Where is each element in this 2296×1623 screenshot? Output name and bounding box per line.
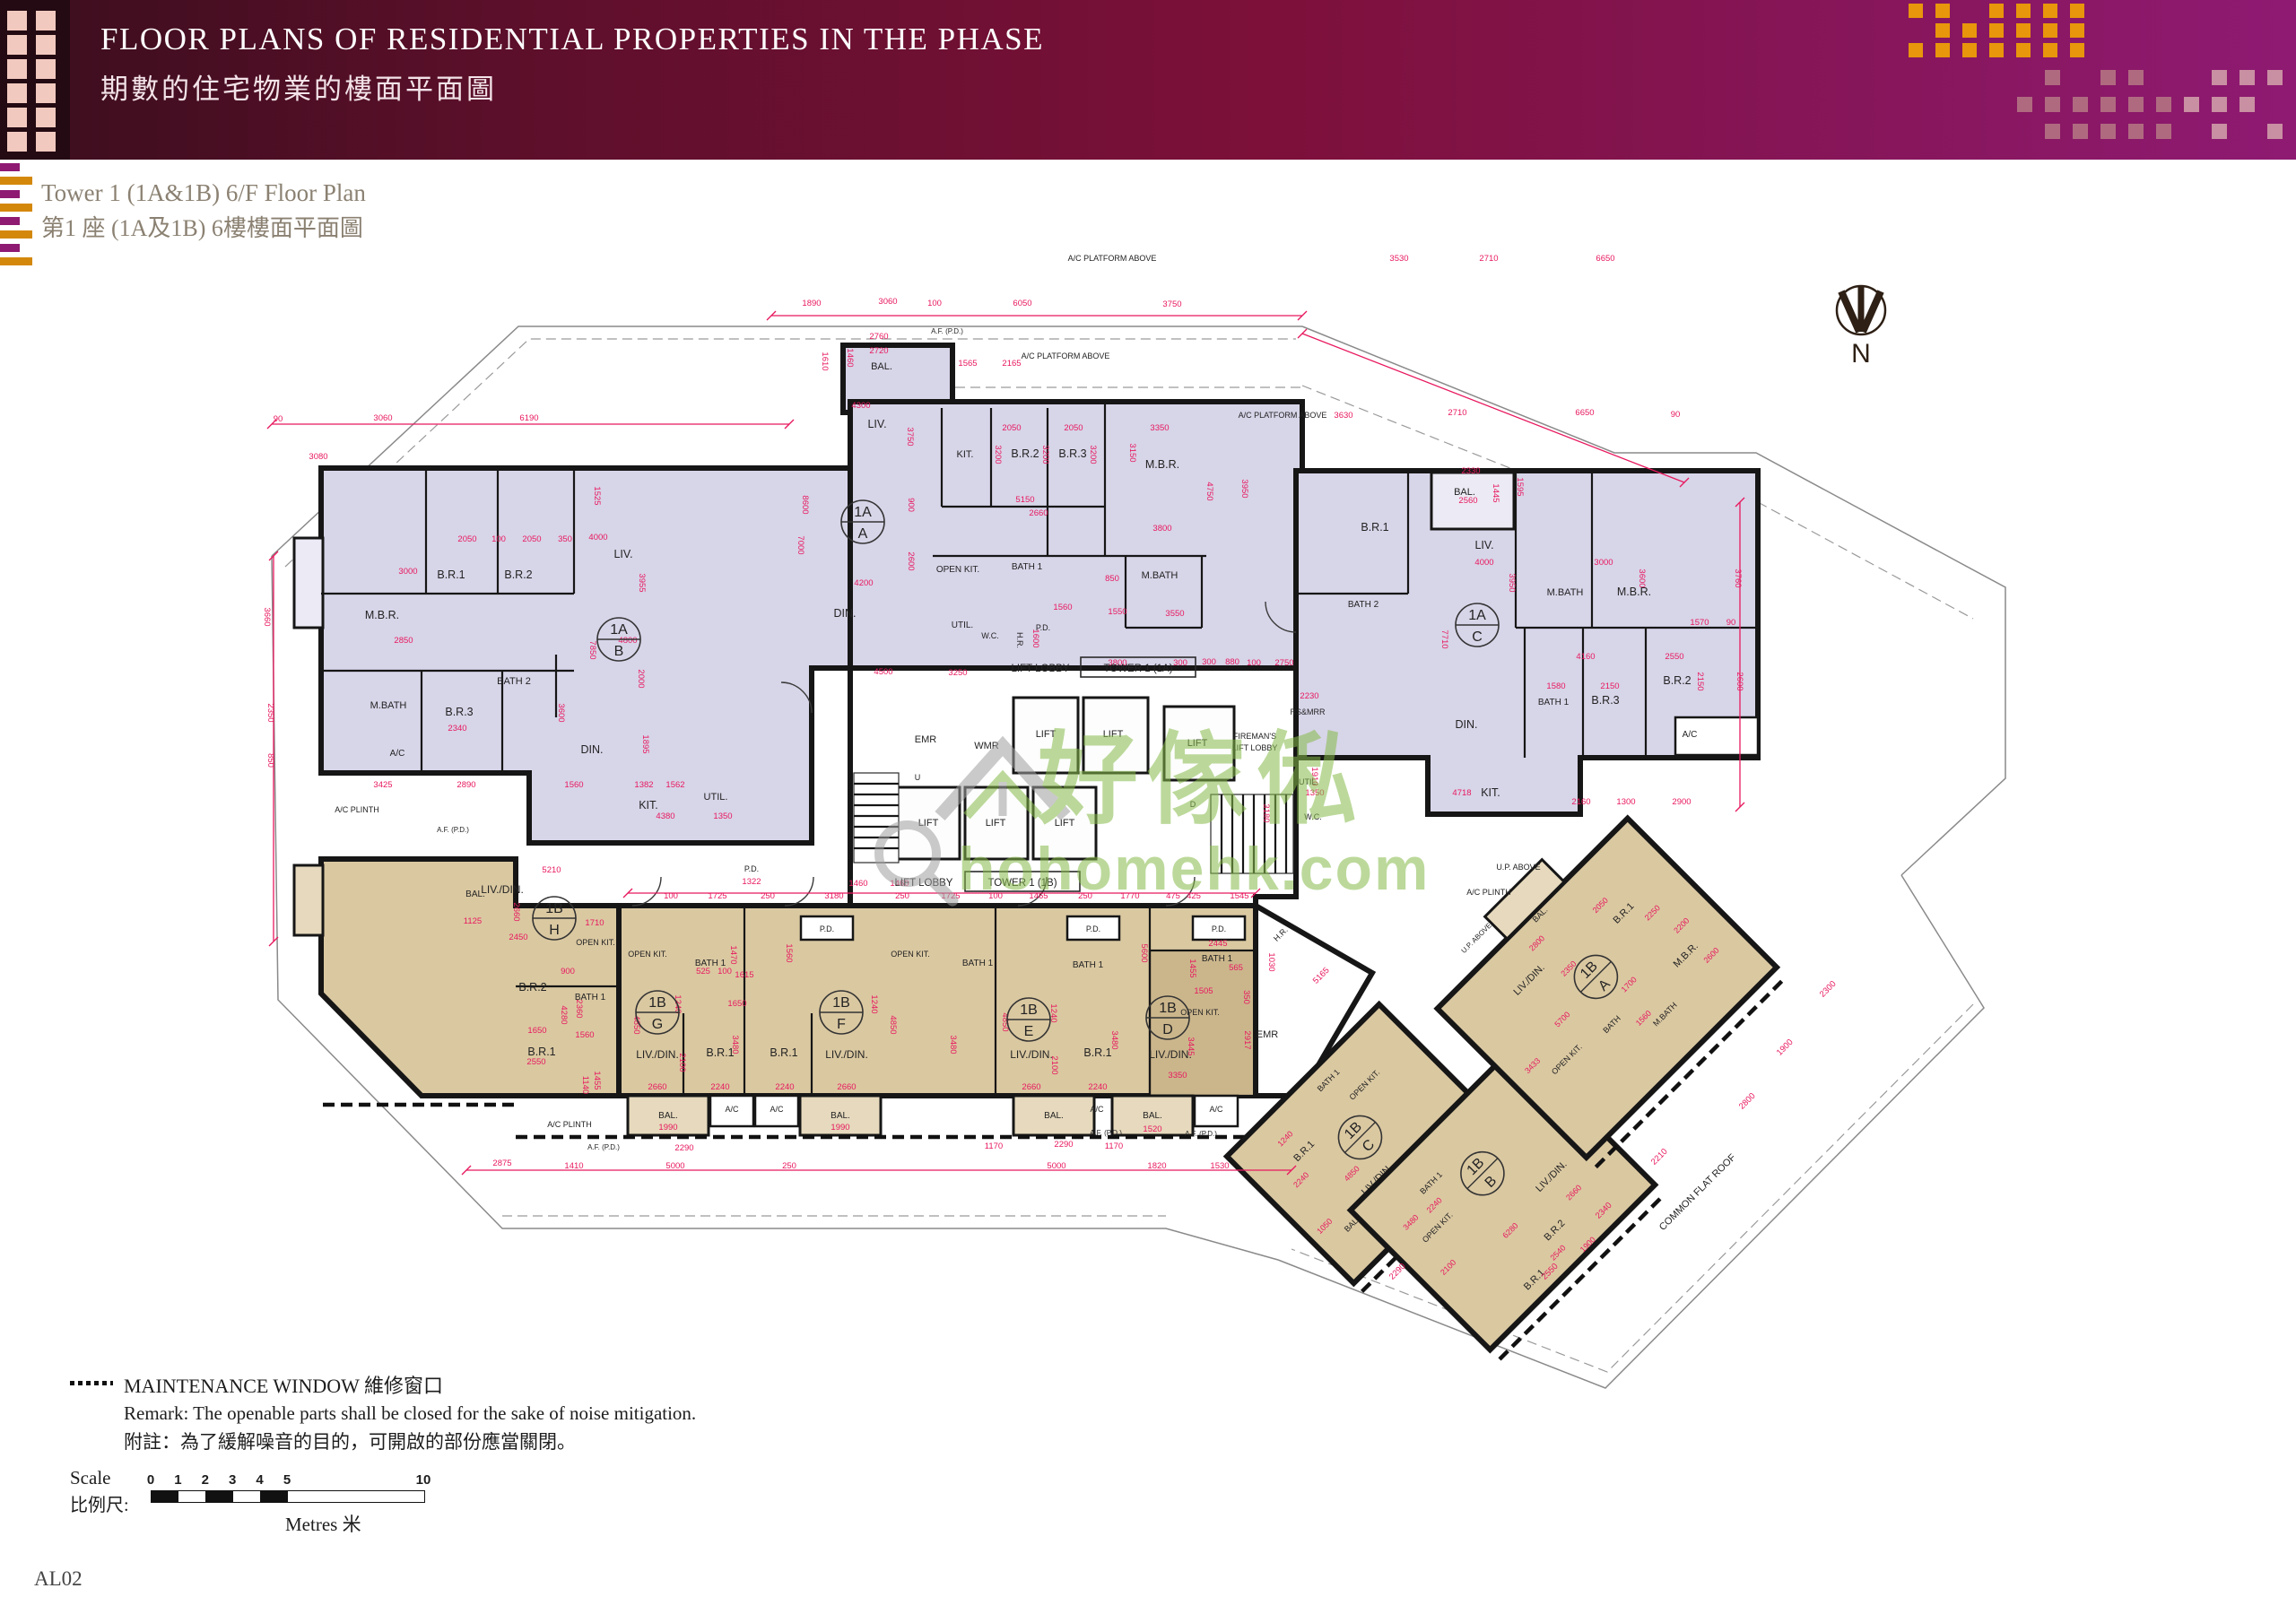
room-label: A/C: [770, 1105, 784, 1114]
dimension-label: 900: [561, 967, 575, 976]
dimension-label: 1455: [592, 1071, 602, 1089]
unit-1A-B-balcony: [294, 538, 323, 628]
dimension-label: 1382: [634, 780, 653, 790]
dimension-label: 3760: [1733, 568, 1743, 587]
room-label: LIV./DIN.: [1149, 1048, 1192, 1061]
unit-badge-bottom: C: [1472, 629, 1483, 645]
dimension-label: 300: [1173, 658, 1187, 668]
scale-tick: 4: [256, 1472, 263, 1488]
room-label: LIV./DIN.: [825, 1048, 868, 1061]
dimension-label: 2165: [1002, 359, 1021, 369]
dimension-label: 1650: [527, 1026, 546, 1036]
room-label: P.D.: [1036, 623, 1050, 632]
dimension-label: 2290: [1054, 1140, 1073, 1150]
room-label: DIN.: [834, 607, 857, 620]
room-label: BAL.: [1143, 1111, 1162, 1121]
legend: MAINTENANCE WINDOW 維修窗口 Remark: The open…: [70, 1370, 967, 1401]
room-label: OPEN KIT.: [936, 565, 979, 575]
dimension-label: 1990: [831, 1123, 849, 1133]
room-label: B.R.3: [1591, 694, 1619, 707]
room-label: M.B.R.: [1145, 458, 1179, 471]
dimension-label: 1650: [727, 999, 746, 1009]
dimension-label: 565: [1229, 963, 1243, 973]
dimension-label: 2660: [511, 902, 521, 921]
room-label: OPEN KIT.: [628, 950, 667, 959]
unit-badge-bottom: F: [837, 1017, 846, 1032]
room-label: OPEN KIT.: [891, 950, 930, 959]
room-label: DIN.: [1456, 718, 1478, 731]
room-label: BATH 2: [1348, 600, 1379, 610]
room-label: EMR: [1257, 1029, 1279, 1040]
dimension-label: 2050: [522, 534, 541, 544]
dimension-label: 1725: [708, 891, 726, 901]
dimension-label: 3660: [262, 607, 272, 626]
dimension-label: 1570: [1690, 618, 1709, 628]
dimension-label: 3630: [1334, 411, 1352, 421]
dimension-label: 2050: [1064, 423, 1083, 433]
dimension-tick: [1298, 329, 1307, 338]
dimension-label: 2450: [509, 933, 527, 942]
dimension-label: 2890: [457, 780, 475, 790]
dimension-label: 6050: [1013, 299, 1031, 308]
dimension-label: 3750: [905, 427, 915, 446]
dimension-label: 2350: [265, 703, 275, 722]
room-label: A.F. (P.D.): [587, 1143, 620, 1151]
dimension-label: 2660: [1029, 508, 1048, 518]
dimension-label: 3180: [824, 891, 843, 901]
dimension-label: 1520: [1143, 1124, 1161, 1134]
dimension-label: 2445: [1208, 939, 1227, 949]
dimension-label: 90: [274, 414, 283, 424]
room-label: KIT.: [957, 449, 974, 460]
dimension-label: 6650: [1575, 408, 1594, 418]
dimension-label: 2800: [1737, 1091, 1758, 1112]
room-label: U.P. ABOVE: [1496, 863, 1540, 872]
dimension-label: 350: [1241, 990, 1251, 1004]
dimension-label: 4280: [559, 1005, 569, 1024]
dimension-label: 1900: [1775, 1037, 1796, 1058]
dimension-label: 3600: [556, 703, 566, 722]
room-label: M.BATH: [370, 700, 407, 711]
north-label: N: [1851, 339, 1871, 369]
room-label: B.R.1: [770, 1046, 797, 1059]
dimension-label: 1560: [575, 1030, 594, 1040]
dimension-label: 100: [491, 534, 506, 544]
dimension-label: 900: [906, 498, 916, 512]
unit-badge-top: 1B: [648, 995, 666, 1011]
dimension-label: 2760: [869, 332, 888, 342]
dimension-label: 1562: [665, 780, 684, 790]
dimension-label: 1530: [1210, 1161, 1229, 1171]
dimension-label: 7000: [796, 535, 805, 554]
dimension-label: 3950: [1507, 573, 1517, 592]
room-label: P.D.: [820, 924, 834, 933]
dimension-label: 1460: [848, 879, 867, 889]
dimension-label: 1445: [1491, 483, 1500, 502]
dimension-label: 300: [1202, 657, 1216, 667]
dimension-label: 1030: [1266, 952, 1276, 971]
dimension-label: 3350: [1150, 423, 1169, 433]
room-label: LIV./DIN.: [481, 883, 524, 896]
dimension-label: 4200: [854, 578, 873, 588]
room-label: BATH 1: [1073, 960, 1104, 970]
dimension-label: 1820: [1147, 1161, 1166, 1171]
dimension-label: 1990: [658, 1123, 677, 1133]
dimension-label: 3350: [1168, 1071, 1187, 1081]
dimension-label: 4850: [888, 1015, 898, 1034]
dimension-label: 5210: [542, 865, 561, 875]
dimension-label: 1170: [1105, 1141, 1123, 1151]
dimension-label: 5600: [1139, 943, 1149, 962]
room-label: DIN.: [581, 743, 604, 756]
room-label: LIFT: [986, 818, 1006, 829]
dimension-label: 5000: [665, 1161, 684, 1171]
unit-badge-top: 1B: [1020, 1002, 1038, 1018]
dimension-label: 3150: [1127, 443, 1137, 462]
room-label: A/C PLATFORM ABOVE: [1022, 352, 1110, 360]
room-label: A.F. (P.D.): [1185, 1130, 1217, 1138]
scale-bar: [151, 1490, 425, 1503]
dimension-label: 3480: [948, 1035, 958, 1054]
dimension-label: 1610: [820, 352, 830, 370]
room-label: UTIL.: [952, 621, 973, 630]
dimension-label: 2160: [1571, 797, 1590, 807]
room-label: OPEN KIT.: [576, 938, 615, 947]
page-code: AL02: [34, 1567, 83, 1591]
dimension-label: 1550: [1108, 607, 1126, 617]
dimension-label: 7710: [1439, 629, 1449, 648]
unit-badge-top: 1B: [832, 995, 850, 1011]
dimension-label: 1560: [1053, 603, 1072, 612]
dimension-label: 2875: [492, 1159, 511, 1168]
scale-metres-label: Metres 米: [285, 1510, 361, 1537]
dimension-label: 1170: [985, 1141, 1003, 1151]
dimension-label: 1350: [713, 811, 732, 821]
room-label: LIV.: [867, 418, 886, 430]
room-label: A/C: [1090, 1105, 1104, 1114]
room-label: LIV.: [1474, 539, 1493, 551]
dimension-label: 2150: [1695, 672, 1705, 690]
dimension-label: 850: [1105, 574, 1119, 584]
room-label: LIV./DIN.: [1010, 1048, 1053, 1061]
room-label: A/C PLINTH: [547, 1120, 592, 1129]
unit-1A-B-outline: [321, 468, 850, 843]
scale-tick: 0: [147, 1472, 154, 1488]
room-label: B.R.1: [706, 1046, 734, 1059]
dimension-label: 1710: [585, 918, 604, 928]
dimension-label: 100: [927, 299, 942, 308]
north-arrow-icon: N: [1837, 285, 1885, 369]
room-label: U.P. ABOVE: [1460, 922, 1493, 955]
dimension-label: 3000: [398, 567, 417, 577]
dimension-label: 3950: [1239, 479, 1249, 498]
dimension-label: 3425: [373, 780, 392, 790]
room-label: BAL.: [1454, 487, 1475, 498]
scale-label-en: Scale: [70, 1467, 110, 1489]
dimension-label: 1322: [742, 877, 761, 887]
dimension-label: 90: [1726, 618, 1736, 628]
dimension-label: 2660: [1022, 1082, 1040, 1092]
dimension-label: 2550: [526, 1057, 545, 1067]
room-label: KIT.: [1481, 786, 1500, 799]
dimension-label: 3530: [1389, 254, 1408, 264]
unit-1A-A-outline: [850, 402, 1302, 668]
dimension-label: 2050: [457, 534, 476, 544]
dimension-label: 2660: [648, 1082, 666, 1092]
dimension-label: 250: [895, 891, 909, 901]
room-label: BAL.: [871, 361, 892, 372]
room-label: A/C: [1209, 1105, 1223, 1114]
unit-badge-top: 1A: [854, 505, 872, 520]
scale-tick: 3: [229, 1472, 236, 1488]
room-label: OPEN KIT.: [1180, 1008, 1220, 1017]
scale-tick: 1: [174, 1472, 181, 1488]
dimension-label: 2150: [1600, 681, 1619, 691]
maintenance-window-dash-sample: [70, 1381, 113, 1385]
dimension-label: 350: [558, 534, 572, 544]
unit-badge-bottom: H: [549, 923, 560, 938]
unit-badge-bottom: D: [1162, 1022, 1173, 1037]
scale-tick: 10: [416, 1472, 431, 1488]
room-label: BATH 1: [1012, 562, 1043, 572]
dimension-label: 2050: [1002, 423, 1021, 433]
dimension-label: 1895: [640, 734, 650, 753]
dimension-label: 3060: [373, 413, 392, 423]
room-label: LIV./DIN.: [636, 1048, 679, 1061]
dimension-label: 1595: [1515, 477, 1525, 496]
room-label: W.C.: [981, 631, 999, 640]
dimension-label: 2210: [1649, 1147, 1670, 1167]
room-label: A/C PLATFORM ABOVE: [1239, 411, 1327, 420]
unit-badge-top: 1A: [610, 622, 628, 638]
dimension-label: 1240: [869, 994, 879, 1013]
lift-lobby-1a-label: LIFT LOBBY: [1012, 664, 1070, 674]
room-label: B.R.1: [1361, 521, 1388, 534]
dimension-label: 8600: [800, 495, 810, 514]
dimension-label: 1140: [580, 1076, 590, 1094]
dimension-label: 1565: [958, 359, 977, 369]
dimension-label: 1525: [592, 486, 602, 505]
dimension-label: 3550: [1165, 609, 1184, 619]
dimension-label: 4500: [874, 667, 892, 677]
dimension-label: 3800: [1152, 524, 1171, 534]
dimension-label: 1455: [1187, 959, 1197, 977]
scale-tick: 2: [202, 1472, 209, 1488]
dimension-label: 3000: [1594, 558, 1613, 568]
room-label: P.D.: [1212, 924, 1226, 933]
dimension-label: 1560: [564, 780, 583, 790]
dimension-label: 3200: [1040, 445, 1050, 464]
dimension-label: 4718: [1452, 788, 1471, 798]
scale-tick: 5: [283, 1472, 291, 1488]
dimension-label: 6650: [1596, 254, 1614, 264]
dimension-label: 7850: [587, 640, 597, 659]
room-label: A/C PLINTH: [1466, 888, 1511, 897]
dimension-label: 3200: [1088, 445, 1098, 464]
room-label: A.F. (P.D.): [931, 327, 963, 335]
dimension-label: 2550: [1665, 652, 1683, 662]
dimension-label: 90: [1671, 410, 1681, 420]
dimension-label: 1890: [802, 299, 821, 308]
dimension-label: 1505: [1194, 986, 1213, 996]
room-label: BATH 1: [1202, 954, 1233, 964]
dimension-label: 4000: [588, 533, 607, 542]
room-label: B.R.1: [437, 568, 465, 581]
dimension-label: 2917: [1242, 1030, 1252, 1049]
dimension-label: 2000: [636, 669, 646, 688]
dimension-label: 2240: [775, 1082, 794, 1092]
room-label: H.R.: [1015, 632, 1024, 648]
dimension-label: 250: [761, 891, 775, 901]
dimension-label: 2240: [1088, 1082, 1107, 1092]
dimension-label: 3750: [1162, 299, 1181, 309]
unit-badge-top: 1A: [1468, 608, 1486, 623]
room-label: M.B.R.: [365, 609, 399, 621]
remark-en: Remark: The openable parts shall be clos…: [124, 1402, 696, 1425]
dimension-label: 1300: [1616, 797, 1635, 807]
bottom-row-outline: [516, 906, 1256, 1096]
dimension-label: 2710: [1448, 408, 1466, 418]
dimension-label: 1410: [564, 1161, 583, 1171]
scale-label-zh: 比例尺:: [70, 1490, 129, 1516]
room-label: B.R.2: [504, 568, 532, 581]
dimension-label: 4000: [1474, 558, 1493, 568]
dimension-label: 3250: [948, 668, 967, 678]
dimension-label: 2290: [674, 1143, 693, 1153]
remark-zh: 附註：為了緩解噪音的目的，可開啟的部份應當關閉。: [124, 1428, 576, 1454]
dimension-label: 4750: [1205, 482, 1214, 500]
room-label: LIV.: [613, 548, 632, 560]
unit-1B-H-balcony: [294, 865, 323, 935]
room-label: B.R.2: [1011, 447, 1039, 460]
dimension-label: 1470: [728, 945, 738, 964]
room-label: M.BATH: [1547, 587, 1584, 598]
dimension-label: 3060: [878, 297, 897, 307]
dimension-label: 100: [1247, 658, 1261, 668]
room-label: A/C: [390, 749, 405, 759]
scale-tick-numbers: 01234510: [151, 1472, 447, 1487]
room-label: BAL.: [1044, 1111, 1064, 1121]
dimension-label: 4160: [1576, 652, 1595, 662]
dimension-label: 250: [782, 1161, 796, 1171]
unit-badge-bottom: A: [858, 526, 868, 542]
room-label: COMMON FLAT ROOF: [1657, 1152, 1738, 1233]
room-label: B.R.3: [445, 706, 473, 718]
unit-badge-top: 1B: [1159, 1001, 1177, 1016]
room-label: A/C PLINTH: [335, 805, 379, 814]
dimension-label: 2660: [837, 1082, 856, 1092]
room-label: B.R.1: [1083, 1046, 1111, 1059]
unit-badge-bottom: B: [614, 644, 624, 659]
room-label: RS&MRR: [1290, 707, 1326, 716]
room-label: A/C: [725, 1105, 739, 1114]
room-label: P.D.: [1086, 924, 1100, 933]
room-label: BATH 1: [962, 959, 994, 968]
dimension-label: 3200: [993, 445, 1003, 464]
dimension-label: 1125: [464, 916, 482, 926]
room-label: M.BATH: [1142, 570, 1178, 581]
dimension-label: 2230: [1300, 691, 1318, 701]
unit-badge-bottom: E: [1024, 1024, 1034, 1039]
watermark-domain-text: hohomehk.com: [958, 835, 1431, 903]
dimension-label: 2600: [1735, 672, 1744, 690]
dimension-label: 2710: [1479, 254, 1498, 264]
room-label: A.F. (P.D.): [1090, 1129, 1122, 1137]
room-label: BAL.: [831, 1111, 850, 1121]
room-label: P.D.: [744, 864, 759, 873]
room-label: B.R.1: [527, 1046, 555, 1058]
room-label: UTIL.: [704, 792, 728, 803]
dimension-label: 2300: [1818, 979, 1839, 1000]
dimension-label: 2900: [1672, 797, 1691, 807]
room-label: BAL.: [465, 890, 485, 899]
dimension-label: 1460: [845, 348, 855, 367]
lift-lobby-1a-box: TOWER 1 (1A): [1103, 664, 1172, 674]
room-label: M.B.R.: [1617, 586, 1651, 598]
room-label: BATH 1: [575, 993, 606, 1002]
dimension-label: 1580: [1546, 681, 1565, 691]
dimension-label: 4380: [656, 811, 674, 821]
dimension-label: 2600: [906, 551, 916, 570]
maintenance-window-label: MAINTENANCE WINDOW 維修窗口: [124, 1370, 443, 1399]
room-label: BATH 1: [1538, 698, 1570, 707]
room-label: BATH 2: [497, 676, 531, 687]
dimension-label: 1615: [735, 970, 753, 980]
dimension-label: 3080: [309, 452, 327, 462]
dimension-label: 4300: [851, 401, 870, 411]
room-label: EMR: [915, 734, 937, 745]
dimension-label: 6190: [519, 413, 538, 423]
dimension-label: 5150: [1015, 495, 1034, 505]
room-label: B.R.3: [1058, 447, 1086, 460]
room-label: A/C: [1683, 730, 1698, 740]
dimension-label: 2720: [869, 346, 888, 356]
dimension-label: 100: [664, 891, 678, 901]
room-label: KIT.: [639, 799, 658, 811]
unit-badge-bottom: G: [652, 1017, 663, 1032]
dimension-label: 2750: [1274, 658, 1293, 668]
dimension-label: 3955: [637, 573, 647, 592]
room-label: A/C PLATFORM ABOVE: [1068, 254, 1157, 263]
room-label: U: [915, 773, 921, 782]
dimension-label: 5000: [1047, 1161, 1065, 1171]
room-label: B.R.2: [518, 981, 546, 994]
unit-badge-top: 1B: [545, 901, 563, 916]
dimension-label: 2850: [394, 636, 413, 646]
room-label: BAL.: [658, 1111, 678, 1121]
dimension-label: 880: [1225, 657, 1239, 667]
watermark-cn-text: 好傢俬: [1037, 724, 1366, 836]
dimension-label: 850: [265, 753, 275, 768]
room-label: BATH 1: [695, 959, 726, 968]
dimension-label: 2240: [710, 1082, 729, 1092]
dimension-label: 2330: [1461, 466, 1480, 476]
room-label: A.F. (P.D.): [437, 826, 469, 834]
dimension-label: 4850: [1000, 1012, 1010, 1031]
room-label: B.R.2: [1663, 674, 1691, 687]
dimension-label: 1560: [784, 943, 794, 962]
dimension-label: 2340: [448, 724, 466, 733]
